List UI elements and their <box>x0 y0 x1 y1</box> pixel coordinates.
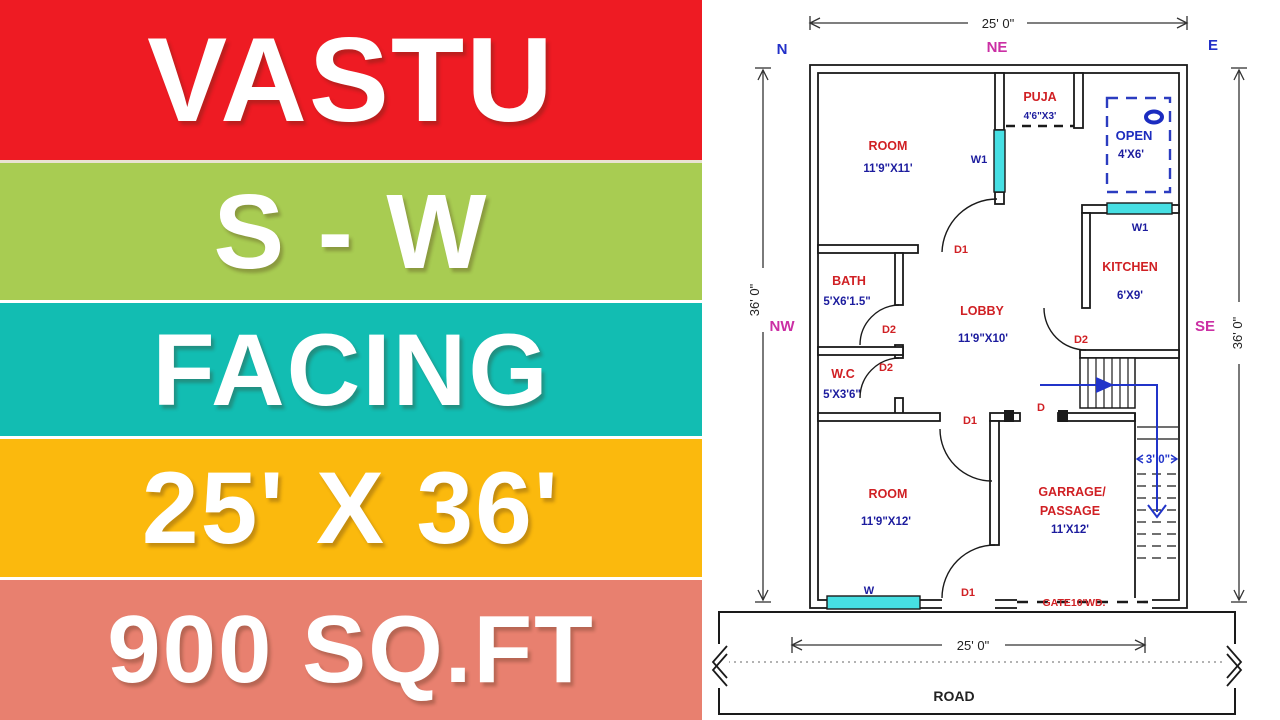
label-gate: GATE10'WD. <box>1043 597 1106 609</box>
puja-name: PUJA <box>1023 90 1056 104</box>
label-d1-mid: D1 <box>963 415 977 427</box>
garage-name-line1: GARRAGE/ <box>1038 485 1106 499</box>
dim-left-height-label: 36' 0" <box>747 283 762 316</box>
label-w1-kitchen: W1 <box>1132 222 1149 234</box>
label-d1-top: D1 <box>954 244 968 256</box>
road: 25' 0" ROAD <box>711 612 1243 714</box>
banner-area-label: 900 SQ.FT <box>107 602 595 698</box>
label-d2-bath: D2 <box>882 324 896 336</box>
label-d2-wc: D2 <box>879 362 893 374</box>
vastu-thumbnail: VASTU S - W FACING 25' X 36' 900 SQ.FT 2… <box>0 0 1280 720</box>
lobby-name: LOBBY <box>960 304 1004 318</box>
puja-size: 4'6"X3' <box>1024 111 1057 122</box>
label-w1-vertical: W1 <box>971 154 988 166</box>
room-top-size: 11'9"X11' <box>863 163 913 175</box>
room-bottom-name: ROOM <box>869 487 908 501</box>
banner-vastu: VASTU <box>0 0 702 163</box>
compass-e: E <box>1208 37 1218 54</box>
column-block <box>1058 410 1068 422</box>
wc-name: W.C <box>831 367 855 381</box>
window-w1-kitchen <box>1107 203 1172 214</box>
dim-right-height-label: 36' 0" <box>1230 316 1245 349</box>
kitchen-name: KITCHEN <box>1102 260 1158 274</box>
compass-nw: NW <box>770 318 796 335</box>
dimension-top-width: 25' 0" <box>810 16 1187 31</box>
room-bottom-size: 11'9"X12' <box>861 516 911 528</box>
kitchen-size: 6'X9' <box>1117 290 1143 302</box>
dimension-left-height: 36' 0" <box>747 68 771 602</box>
label-d1-entrance: D1 <box>961 587 975 599</box>
open-area-symbol <box>1146 112 1162 123</box>
compass-ne: NE <box>987 39 1008 56</box>
label-w-bottom: W <box>864 585 875 597</box>
window-w1-vertical <box>994 130 1005 192</box>
bath-size: 5'X6'1.5" <box>823 296 870 308</box>
garage-name-line2: PASSAGE <box>1040 504 1100 518</box>
road-break-left <box>711 644 729 688</box>
window-w-room-bottom <box>827 596 920 609</box>
compass-se: SE <box>1195 318 1215 335</box>
dim-top-width-label: 25' 0" <box>982 16 1015 31</box>
dim-bottom-width-label: 25' 0" <box>957 638 990 653</box>
lobby-size: 11'9"X10' <box>958 333 1008 345</box>
road-label: ROAD <box>933 688 974 704</box>
dimension-right-height: 36' 0" <box>1230 68 1247 602</box>
dim-stair-width-label: 3' 0" <box>1146 454 1170 466</box>
column-block <box>1004 410 1014 422</box>
wc-size: 5'X3'6" <box>823 389 861 401</box>
room-top-name: ROOM <box>869 139 908 153</box>
road-break-right <box>1225 644 1243 688</box>
floor-plan-panel: 25' 0" 36' 0" 36' 0" N NE E NW SE <box>702 0 1280 720</box>
floor-plan-drawing: 25' 0" 36' 0" 36' 0" N NE E NW SE <box>702 0 1280 720</box>
compass-n: N <box>777 41 788 58</box>
title-panel: VASTU S - W FACING 25' X 36' 900 SQ.FT <box>0 0 702 720</box>
banner-facing: FACING <box>0 303 702 439</box>
bath-name: BATH <box>832 274 866 288</box>
banner-area: 900 SQ.FT <box>0 580 702 720</box>
banner-plot-size: 25' X 36' <box>0 439 702 580</box>
banner-facing-direction: S - W <box>0 163 702 303</box>
label-d2-kitchen: D2 <box>1074 334 1088 346</box>
banner-vastu-label: VASTU <box>147 20 555 140</box>
open-size: 4'X6' <box>1118 149 1144 161</box>
banner-facing-label: FACING <box>152 319 549 421</box>
open-name: OPEN <box>1116 128 1153 143</box>
garage-size: 11'X12' <box>1051 524 1089 536</box>
banner-plot-size-label: 25' X 36' <box>142 457 560 559</box>
banner-facing-direction-label: S - W <box>214 179 489 285</box>
label-d-garage: D <box>1037 402 1045 414</box>
